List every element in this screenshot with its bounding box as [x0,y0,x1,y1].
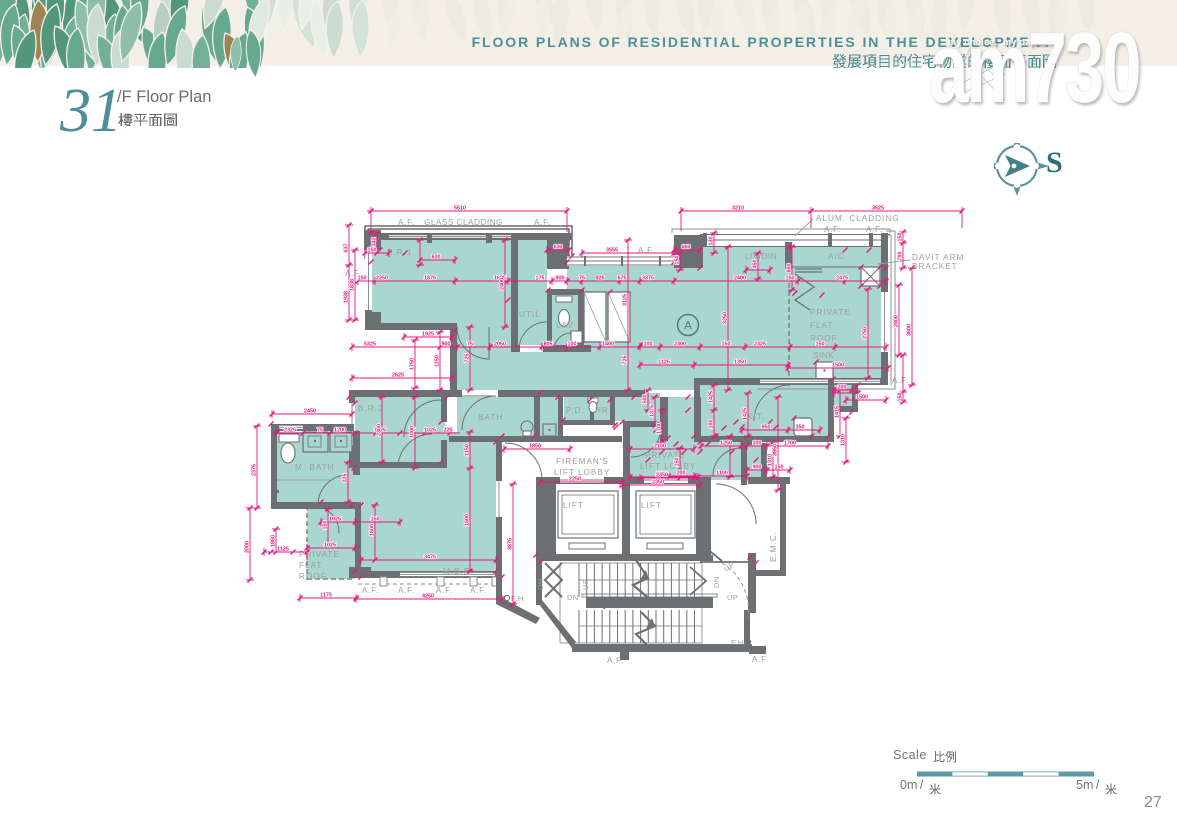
svg-text:1600: 1600 [465,514,471,526]
svg-text:1860: 1860 [271,535,277,547]
svg-text:630: 630 [554,245,563,251]
svg-text:150: 150 [358,276,367,282]
svg-text:DN: DN [536,578,545,590]
svg-text:LIFT: LIFT [641,501,662,510]
svg-text:A.F.: A.F. [470,586,487,595]
svg-text:1000: 1000 [410,426,416,438]
svg-text:2100: 2100 [654,444,666,450]
svg-text:GLASS CLADDING: GLASS CLADDING [424,218,503,227]
svg-text:2625: 2625 [392,373,404,379]
svg-text:DN: DN [567,593,579,602]
svg-text:150: 150 [675,458,681,467]
svg-text:A: A [684,319,692,333]
svg-text:BRACKET: BRACKET [912,262,958,271]
svg-text:2050: 2050 [494,342,506,348]
svg-text:1700: 1700 [657,422,663,434]
svg-text:5510: 5510 [454,206,466,212]
svg-text:LIFT: LIFT [563,501,584,510]
svg-text:100: 100 [644,342,653,348]
svg-text:5325: 5325 [364,342,376,348]
svg-text:150: 150 [898,233,904,242]
svg-text:2250: 2250 [569,477,581,483]
svg-text:150: 150 [898,393,904,402]
svg-text:1150: 1150 [465,444,471,456]
svg-text:3475: 3475 [424,555,436,561]
svg-text:1400: 1400 [602,342,614,348]
svg-text:2300: 2300 [674,342,686,348]
svg-text:1925: 1925 [422,332,434,338]
svg-text:675: 675 [618,276,627,282]
svg-text:1350: 1350 [734,360,746,366]
svg-text:100: 100 [709,420,715,429]
svg-text:1415: 1415 [835,406,841,418]
svg-text:200: 200 [838,385,847,391]
svg-text:LIFT LOBBY: LIFT LOBBY [554,468,610,477]
svg-text:3875: 3875 [508,538,514,550]
svg-text:1375: 1375 [650,405,656,417]
svg-text:637: 637 [344,244,350,253]
svg-text:A.F.: A.F. [534,218,551,227]
svg-text:900: 900 [753,465,762,471]
svg-text:350: 350 [796,425,805,431]
svg-text:1875: 1875 [424,276,436,282]
svg-text:LIFT LOBBY: LIFT LOBBY [640,462,696,471]
svg-text:2350: 2350 [652,480,664,486]
svg-text:630: 630 [432,255,441,261]
svg-text:600: 600 [787,264,793,273]
svg-text:2750: 2750 [863,327,869,339]
svg-text:950: 950 [762,425,771,431]
svg-text:3600: 3600 [907,324,913,336]
svg-text:2325: 2325 [284,428,296,434]
svg-text:1425: 1425 [709,391,715,403]
svg-text:A.F.: A.F. [398,218,415,227]
svg-text:A.F.: A.F. [607,656,624,665]
svg-text:150: 150 [786,276,795,282]
svg-text:1200: 1200 [334,428,346,434]
svg-text:130: 130 [709,237,715,246]
svg-text:2325: 2325 [754,342,766,348]
svg-text:4250: 4250 [422,594,434,600]
svg-text:FIREMAN'S: FIREMAN'S [556,457,609,466]
svg-text:KIT.: KIT. [747,412,765,421]
svg-text:150: 150 [722,342,731,348]
svg-text:1750: 1750 [410,358,416,370]
svg-text:1310: 1310 [841,434,847,446]
svg-text:1600: 1600 [370,524,376,536]
svg-text:3210: 3210 [732,206,744,212]
svg-text:SINK: SINK [813,351,834,360]
svg-text:342: 342 [372,238,378,247]
svg-text:1025: 1025 [329,517,341,523]
svg-text:2000: 2000 [245,541,251,553]
svg-text:1125: 1125 [658,360,670,366]
svg-text:BATH: BATH [478,413,503,422]
svg-text:450: 450 [753,260,759,269]
svg-text:3555: 3555 [606,248,618,254]
svg-text:B.R.2: B.R.2 [358,404,383,413]
svg-text:DN: DN [712,576,721,588]
svg-text:F.H.: F.H. [731,638,746,647]
svg-text:1175: 1175 [320,593,332,599]
svg-text:900: 900 [442,342,451,348]
svg-text:1850: 1850 [529,444,541,450]
svg-text:3125: 3125 [623,294,629,306]
svg-text:2800: 2800 [894,315,900,327]
svg-text:1500: 1500 [832,363,844,369]
svg-text:200: 200 [677,471,686,477]
svg-text:1100: 1100 [716,471,728,477]
svg-text:ALUM. CLADDING: ALUM. CLADDING [816,214,900,223]
svg-text:2250: 2250 [376,276,388,282]
svg-text:1150: 1150 [435,355,441,367]
svg-text:P.D.: P.D. [566,406,585,415]
svg-text:900: 900 [556,276,565,282]
svg-text:700: 700 [898,252,904,261]
svg-text:E.M.C.: E.M.C. [769,531,778,562]
svg-text:150: 150 [675,256,681,265]
svg-text:3250: 3250 [723,312,729,324]
svg-text:1938: 1938 [344,291,350,303]
svg-text:3850: 3850 [773,444,779,456]
svg-text:805: 805 [544,342,553,348]
svg-text:2475: 2475 [836,276,848,282]
svg-text:UP: UP [581,579,590,590]
svg-text:660: 660 [682,245,691,251]
svg-text:A/C: A/C [828,252,845,261]
svg-text:1250: 1250 [720,441,732,447]
svg-text:PRIVATE: PRIVATE [810,308,851,317]
svg-text:2400: 2400 [734,276,746,282]
svg-text:1025: 1025 [424,428,436,434]
svg-text:ROOF: ROOF [299,572,327,581]
svg-text:1500: 1500 [856,395,868,401]
svg-text:150: 150 [323,521,329,530]
svg-text:FLAT: FLAT [810,321,833,330]
svg-text:100: 100 [568,342,577,348]
svg-text:225: 225 [444,428,453,434]
svg-text:A.F.: A.F. [638,246,655,255]
svg-text:DAVIT ARM: DAVIT ARM [912,253,964,262]
svg-text:3625: 3625 [872,206,884,212]
svg-text:A.F.: A.F. [362,586,379,595]
svg-text:500: 500 [643,395,649,404]
svg-text:75: 75 [579,276,585,282]
svg-text:2350: 2350 [656,473,668,479]
svg-text:2450: 2450 [304,409,316,415]
svg-text:3375: 3375 [642,276,654,282]
svg-text:UP: UP [727,593,738,602]
svg-text:A.F.: A.F. [824,225,841,234]
svg-text:HR: HR [595,406,609,415]
svg-text:1838: 1838 [350,279,356,291]
svg-text:A.F.: A.F. [436,586,453,595]
svg-text:150: 150 [816,342,825,348]
svg-text:A.F.: A.F. [892,376,909,385]
svg-text:225: 225 [343,474,349,483]
svg-text:175: 175 [536,276,545,282]
svg-text:FLAT: FLAT [299,561,322,570]
svg-text:1025: 1025 [324,543,336,549]
svg-text:UTIL: UTIL [519,310,541,319]
svg-text:1700: 1700 [784,441,796,447]
svg-text:A.F.: A.F. [398,586,415,595]
svg-text:B.R.1: B.R.1 [387,248,412,257]
svg-text:75: 75 [467,342,473,348]
svg-text:825: 825 [596,276,605,282]
svg-text:150: 150 [775,465,784,471]
svg-text:150: 150 [368,248,377,254]
svg-text:725: 725 [623,356,629,365]
svg-text:2400: 2400 [500,278,506,290]
svg-text:M. BATH: M. BATH [295,463,335,472]
svg-text:A.F.: A.F. [866,225,883,234]
svg-text:2375: 2375 [252,464,258,476]
svg-text:2300: 2300 [377,424,383,436]
svg-text:1125: 1125 [277,547,289,553]
svg-text:150: 150 [371,517,380,523]
svg-text:1425: 1425 [743,408,749,420]
svg-text:75: 75 [317,428,323,434]
svg-text:A.F.: A.F. [752,655,769,664]
svg-text:LAV: LAV [556,321,574,330]
svg-text:100: 100 [753,441,762,447]
svg-text:725: 725 [465,354,471,363]
